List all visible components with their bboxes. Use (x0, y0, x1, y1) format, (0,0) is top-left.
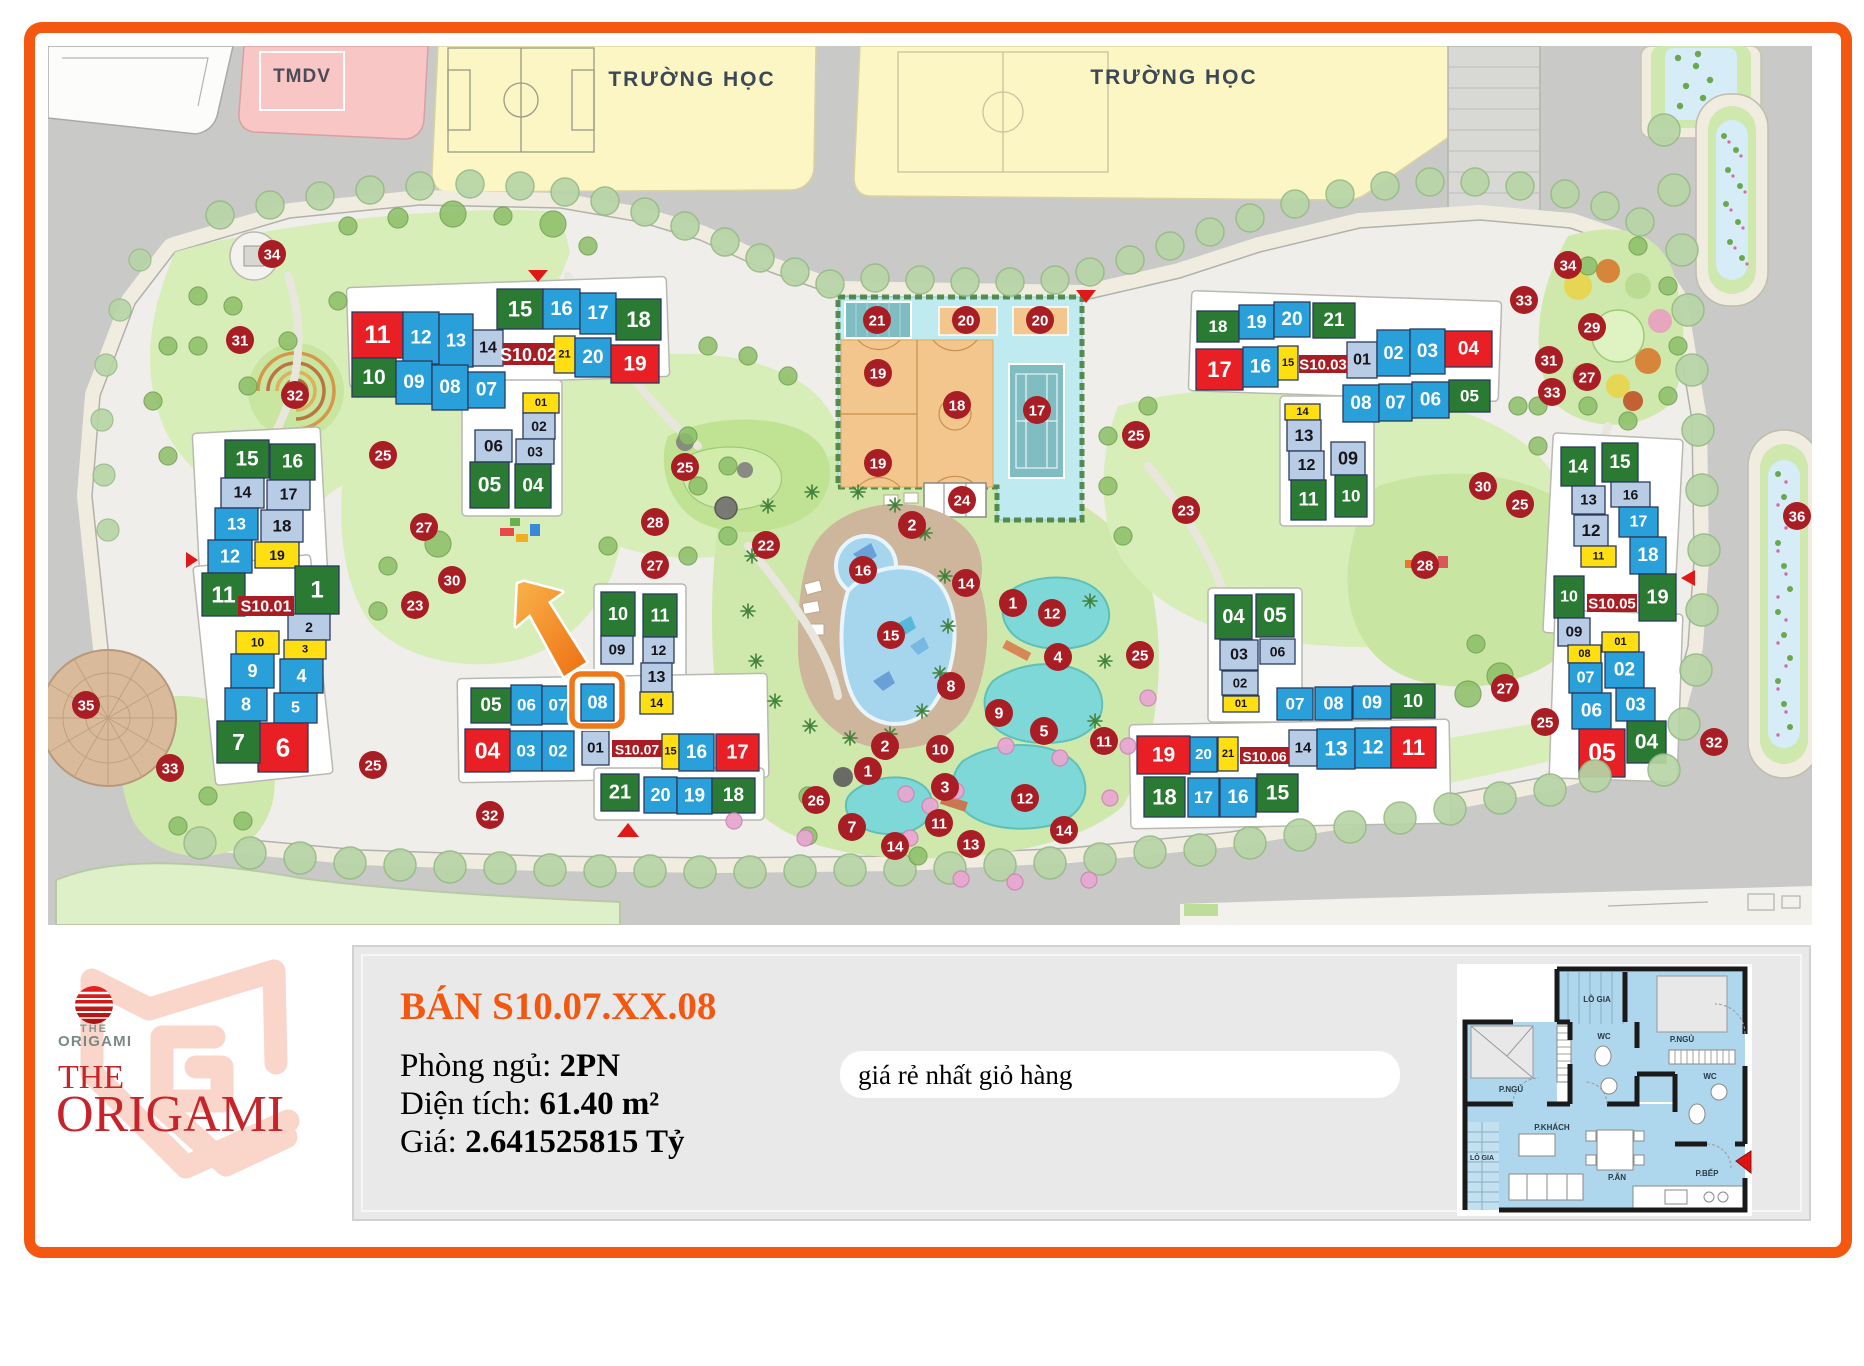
svg-text:7: 7 (848, 820, 857, 837)
svg-text:19: 19 (1246, 312, 1266, 332)
svg-text:TRƯỜNG HỌC: TRƯỜNG HỌC (608, 67, 775, 91)
svg-text:21: 21 (1222, 748, 1234, 760)
svg-text:27: 27 (1497, 681, 1514, 698)
svg-text:25: 25 (1132, 648, 1149, 665)
svg-text:S10.07: S10.07 (615, 742, 660, 758)
svg-text:20: 20 (958, 313, 975, 330)
svg-text:03: 03 (1230, 647, 1248, 664)
svg-text:14: 14 (887, 839, 904, 856)
svg-text:09: 09 (1566, 624, 1583, 641)
svg-text:21: 21 (869, 313, 886, 330)
svg-text:25: 25 (375, 448, 392, 465)
svg-text:06: 06 (1270, 644, 1286, 660)
svg-text:06: 06 (1581, 701, 1602, 722)
svg-text:18: 18 (949, 398, 966, 415)
svg-text:22: 22 (758, 538, 775, 555)
svg-text:06: 06 (484, 437, 503, 456)
svg-text:20: 20 (1195, 746, 1212, 763)
svg-text:16: 16 (1623, 487, 1639, 503)
svg-text:17: 17 (1194, 788, 1213, 807)
svg-text:15: 15 (235, 448, 259, 471)
svg-text:S10.05: S10.05 (1588, 596, 1636, 613)
svg-text:1: 1 (1009, 596, 1018, 613)
svg-text:07: 07 (476, 380, 497, 401)
svg-text:10: 10 (932, 742, 949, 759)
svg-text:09: 09 (1338, 449, 1358, 469)
svg-text:15: 15 (1609, 452, 1631, 473)
svg-text:07: 07 (1577, 670, 1595, 687)
svg-text:12: 12 (1582, 521, 1601, 540)
svg-text:28: 28 (647, 515, 664, 532)
svg-text:19: 19 (870, 366, 887, 383)
svg-text:11: 11 (364, 321, 391, 349)
svg-text:TRƯỜNG HỌC: TRƯỜNG HỌC (1090, 65, 1257, 89)
svg-text:03: 03 (517, 742, 536, 761)
svg-text:10: 10 (362, 366, 385, 389)
svg-text:9: 9 (247, 661, 257, 681)
svg-text:03: 03 (1625, 695, 1645, 715)
svg-text:16: 16 (855, 563, 872, 580)
svg-text:10: 10 (251, 636, 265, 650)
svg-text:08: 08 (1350, 393, 1371, 414)
svg-text:19: 19 (623, 353, 646, 376)
svg-text:07: 07 (1385, 393, 1405, 413)
svg-text:04: 04 (1222, 606, 1245, 628)
svg-text:9: 9 (995, 706, 1004, 723)
svg-text:14: 14 (1296, 406, 1309, 418)
svg-text:4: 4 (1054, 650, 1063, 667)
svg-text:18: 18 (1637, 545, 1658, 566)
svg-text:18: 18 (626, 307, 650, 332)
svg-text:18: 18 (1152, 785, 1176, 810)
svg-text:11: 11 (211, 582, 236, 608)
svg-text:14: 14 (234, 485, 252, 502)
svg-text:05: 05 (1263, 604, 1287, 627)
svg-text:21: 21 (558, 349, 570, 361)
svg-text:16: 16 (282, 452, 303, 473)
svg-text:18: 18 (1209, 317, 1228, 336)
svg-text:7: 7 (232, 729, 245, 755)
svg-text:17: 17 (280, 487, 298, 504)
svg-text:12: 12 (410, 328, 431, 349)
svg-text:10: 10 (608, 604, 628, 624)
svg-text:25: 25 (1512, 497, 1529, 514)
svg-text:09: 09 (1362, 693, 1382, 713)
svg-text:P.NGỦ: P.NGỦ (1499, 1085, 1524, 1094)
svg-text:01: 01 (1353, 352, 1371, 369)
svg-text:16: 16 (550, 298, 572, 320)
svg-text:19: 19 (1152, 744, 1175, 767)
svg-text:14: 14 (1295, 740, 1312, 757)
svg-text:17: 17 (1630, 514, 1648, 531)
svg-text:32: 32 (482, 808, 499, 825)
svg-text:10: 10 (1403, 691, 1423, 711)
svg-text:15: 15 (1282, 357, 1294, 369)
svg-text:14: 14 (1056, 823, 1073, 840)
svg-text:04: 04 (475, 738, 501, 764)
svg-text:27: 27 (647, 558, 664, 575)
svg-text:5: 5 (1040, 724, 1049, 741)
svg-text:28: 28 (1417, 558, 1434, 575)
svg-text:LÔ GIA: LÔ GIA (1470, 1153, 1494, 1162)
svg-text:34: 34 (1560, 258, 1577, 275)
svg-text:19: 19 (269, 547, 285, 563)
svg-text:20: 20 (1281, 309, 1302, 330)
svg-text:35: 35 (78, 698, 95, 715)
svg-text:36: 36 (1789, 509, 1806, 526)
svg-text:31: 31 (1541, 353, 1558, 370)
svg-text:2: 2 (305, 619, 313, 635)
svg-text:P.BẾP: P.BẾP (1696, 1168, 1720, 1178)
svg-text:15: 15 (1266, 782, 1290, 805)
svg-text:04: 04 (1635, 731, 1659, 754)
svg-text:07: 07 (1286, 695, 1305, 714)
svg-text:01: 01 (1614, 636, 1626, 648)
svg-text:13: 13 (446, 331, 466, 351)
svg-text:WC: WC (1597, 1032, 1611, 1041)
svg-text:01: 01 (1235, 698, 1247, 710)
svg-text:WC: WC (1703, 1072, 1717, 1081)
svg-text:25: 25 (677, 460, 694, 477)
svg-text:25: 25 (1128, 428, 1145, 445)
svg-text:10: 10 (1342, 487, 1361, 506)
svg-text:3: 3 (302, 644, 308, 656)
svg-text:TMDV: TMDV (273, 66, 331, 87)
svg-text:19: 19 (870, 456, 887, 473)
svg-text:03: 03 (527, 444, 543, 460)
svg-text:05: 05 (1460, 387, 1479, 406)
svg-text:14: 14 (1568, 457, 1588, 477)
svg-text:04: 04 (1458, 339, 1480, 360)
svg-text:P.NGỦ: P.NGỦ (1670, 1035, 1695, 1044)
svg-text:27: 27 (416, 520, 433, 537)
svg-text:6: 6 (276, 733, 290, 763)
svg-text:3: 3 (941, 780, 950, 797)
svg-text:25: 25 (1537, 715, 1554, 732)
svg-text:8: 8 (947, 679, 956, 696)
svg-text:17: 17 (726, 742, 748, 764)
svg-text:23: 23 (407, 598, 424, 615)
svg-text:18: 18 (273, 517, 292, 536)
svg-text:08: 08 (1323, 694, 1343, 714)
svg-text:18: 18 (723, 785, 744, 806)
svg-text:16: 16 (1250, 357, 1271, 378)
svg-text:P.ĂN: P.ĂN (1608, 1173, 1626, 1182)
svg-text:02: 02 (1383, 343, 1403, 363)
svg-text:33: 33 (1544, 385, 1561, 402)
svg-text:11: 11 (931, 816, 947, 833)
svg-text:S10.03: S10.03 (1299, 357, 1347, 374)
svg-text:07: 07 (549, 696, 568, 715)
svg-text:14: 14 (650, 696, 664, 710)
svg-text:21: 21 (609, 782, 631, 804)
svg-text:19: 19 (684, 786, 705, 807)
svg-text:13: 13 (648, 669, 666, 686)
svg-text:11: 11 (1096, 734, 1112, 751)
svg-text:11: 11 (1298, 490, 1319, 511)
svg-text:11: 11 (1593, 551, 1605, 563)
svg-text:09: 09 (609, 642, 626, 659)
svg-text:04: 04 (522, 476, 544, 497)
svg-text:30: 30 (444, 573, 461, 590)
svg-text:05: 05 (480, 695, 502, 716)
svg-text:5: 5 (291, 700, 300, 717)
svg-text:ORIGAMI: ORIGAMI (58, 1033, 132, 1050)
svg-text:02: 02 (531, 418, 547, 434)
svg-text:1: 1 (864, 764, 873, 781)
svg-text:ORIGAMI: ORIGAMI (56, 1086, 284, 1143)
svg-text:02: 02 (1614, 660, 1635, 681)
svg-text:15: 15 (883, 628, 900, 645)
svg-text:12: 12 (651, 642, 667, 658)
svg-text:12: 12 (1298, 457, 1316, 474)
svg-text:03: 03 (1417, 341, 1438, 362)
svg-text:31: 31 (232, 333, 249, 350)
svg-text:15: 15 (508, 297, 532, 322)
svg-text:17: 17 (1207, 357, 1231, 382)
svg-text:08: 08 (439, 377, 460, 398)
svg-text:14: 14 (479, 340, 497, 357)
svg-text:1: 1 (310, 577, 323, 604)
svg-text:15: 15 (664, 746, 676, 758)
svg-text:11: 11 (650, 606, 669, 626)
svg-text:24: 24 (954, 493, 971, 510)
svg-text:12: 12 (1362, 738, 1383, 759)
svg-text:01: 01 (535, 397, 547, 409)
svg-text:14: 14 (958, 576, 975, 593)
svg-text:20: 20 (582, 347, 603, 368)
svg-text:13: 13 (227, 515, 246, 534)
svg-text:12: 12 (1017, 791, 1034, 808)
svg-text:LÔ GIA: LÔ GIA (1583, 995, 1611, 1004)
svg-text:12: 12 (220, 547, 240, 567)
svg-text:13: 13 (963, 837, 980, 854)
svg-text:32: 32 (1706, 735, 1723, 752)
svg-text:09: 09 (403, 372, 424, 393)
svg-text:16: 16 (686, 742, 707, 763)
svg-text:20: 20 (1032, 313, 1049, 330)
svg-text:34: 34 (264, 247, 281, 264)
svg-text:2: 2 (908, 518, 917, 535)
svg-text:17: 17 (1029, 403, 1046, 420)
svg-text:33: 33 (1516, 293, 1533, 310)
svg-text:11: 11 (1402, 735, 1425, 760)
svg-text:10: 10 (1560, 589, 1578, 606)
svg-text:26: 26 (808, 793, 825, 810)
svg-text:25: 25 (365, 758, 382, 775)
svg-text:19: 19 (1646, 587, 1668, 609)
svg-text:13: 13 (1324, 738, 1347, 761)
svg-text:23: 23 (1178, 503, 1195, 520)
svg-text:29: 29 (1584, 320, 1601, 337)
svg-text:27: 27 (1579, 370, 1596, 387)
svg-text:4: 4 (296, 666, 306, 686)
svg-text:05: 05 (478, 474, 502, 497)
svg-text:S10.02: S10.02 (500, 345, 557, 365)
svg-text:2: 2 (881, 739, 890, 756)
svg-text:02: 02 (549, 742, 568, 761)
svg-text:02: 02 (1233, 676, 1247, 691)
svg-text:13: 13 (1580, 492, 1597, 509)
svg-text:33: 33 (162, 761, 179, 778)
svg-text:P.KHÁCH: P.KHÁCH (1534, 1123, 1570, 1132)
svg-text:20: 20 (650, 785, 670, 805)
svg-text:12: 12 (1044, 606, 1061, 623)
svg-text:17: 17 (587, 303, 608, 324)
svg-text:S10.06: S10.06 (1242, 749, 1287, 765)
svg-text:S10.01: S10.01 (241, 599, 292, 616)
svg-text:8: 8 (241, 695, 251, 715)
svg-text:30: 30 (1475, 479, 1492, 496)
svg-text:06: 06 (1420, 390, 1441, 411)
svg-text:01: 01 (587, 740, 604, 757)
svg-text:13: 13 (1295, 426, 1314, 445)
svg-text:08: 08 (587, 693, 607, 713)
svg-text:21: 21 (1323, 310, 1345, 331)
svg-text:32: 32 (287, 388, 304, 405)
svg-text:06: 06 (517, 696, 536, 715)
svg-text:16: 16 (1227, 787, 1248, 808)
svg-text:08: 08 (1578, 648, 1590, 660)
